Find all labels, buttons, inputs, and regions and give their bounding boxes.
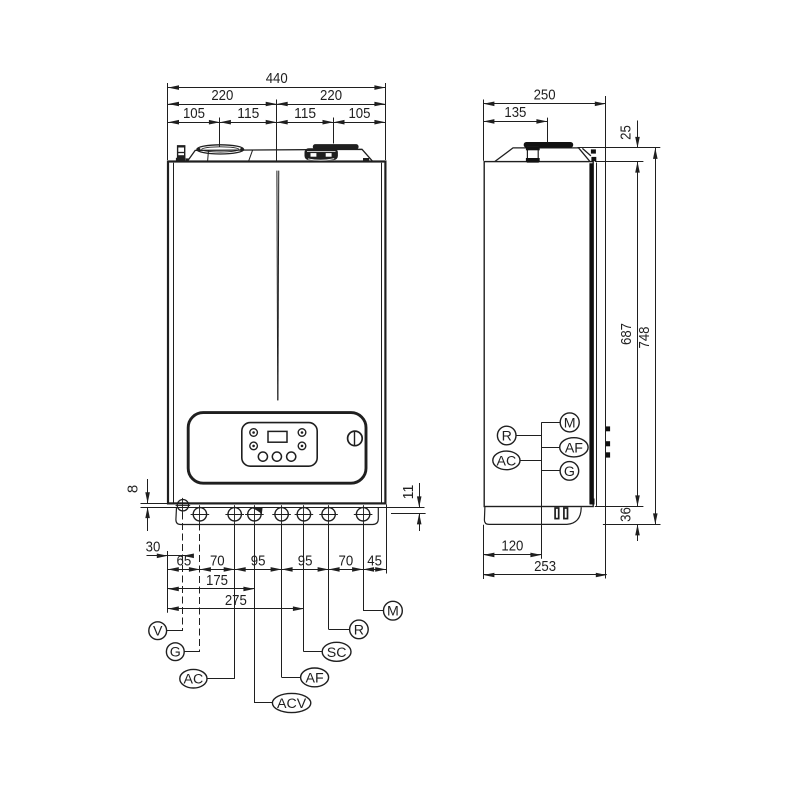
svg-text:220: 220: [320, 87, 342, 104]
svg-text:275: 275: [225, 592, 247, 609]
svg-text:65: 65: [177, 553, 192, 570]
svg-text:70: 70: [210, 553, 225, 570]
svg-text:95: 95: [251, 553, 266, 570]
svg-text:AF: AF: [306, 670, 324, 686]
svg-text:AC: AC: [184, 672, 204, 688]
svg-text:115: 115: [294, 105, 316, 122]
svg-text:30: 30: [146, 539, 161, 556]
svg-text:R: R: [354, 622, 364, 638]
svg-text:105: 105: [348, 105, 370, 122]
svg-text:250: 250: [534, 87, 556, 104]
svg-text:105: 105: [183, 105, 205, 122]
svg-text:G: G: [564, 464, 575, 480]
svg-text:AF: AF: [565, 440, 583, 456]
svg-text:70: 70: [339, 553, 354, 570]
svg-text:95: 95: [298, 553, 313, 570]
svg-text:R: R: [502, 429, 512, 445]
svg-text:253: 253: [534, 558, 556, 575]
svg-text:25: 25: [618, 125, 635, 140]
svg-text:440: 440: [266, 70, 288, 87]
svg-text:M: M: [387, 604, 399, 620]
svg-text:ACV: ACV: [277, 696, 307, 712]
svg-text:M: M: [564, 415, 576, 431]
svg-text:V: V: [153, 624, 163, 640]
svg-text:135: 135: [504, 104, 526, 121]
svg-text:748: 748: [636, 327, 653, 349]
svg-text:AC: AC: [497, 453, 517, 469]
svg-text:36: 36: [618, 507, 635, 522]
svg-text:G: G: [170, 645, 181, 661]
svg-text:220: 220: [211, 87, 233, 104]
svg-text:8: 8: [125, 485, 142, 493]
svg-text:45: 45: [367, 553, 382, 570]
svg-text:687: 687: [618, 323, 635, 345]
svg-text:120: 120: [501, 538, 523, 555]
svg-text:175: 175: [206, 572, 228, 589]
svg-text:115: 115: [237, 105, 259, 122]
svg-text:11: 11: [400, 485, 417, 500]
svg-text:SC: SC: [327, 645, 347, 661]
